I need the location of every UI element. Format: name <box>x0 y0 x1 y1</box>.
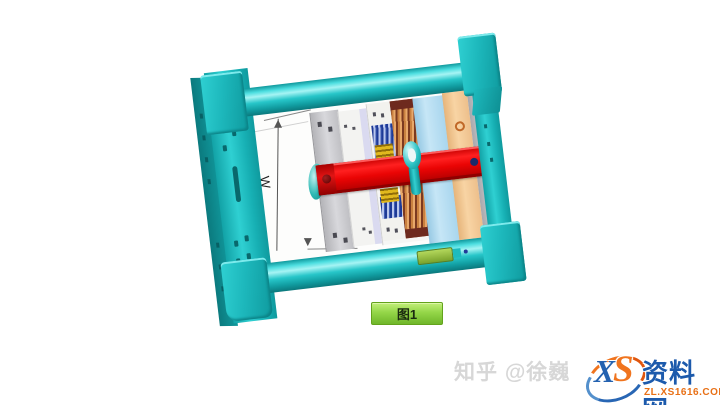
mold-frame-corner-bottom-right <box>480 221 527 285</box>
figure-page: W <box>0 0 720 405</box>
mold-assembly-figure: W <box>207 47 521 304</box>
locating-ring-mark <box>454 121 465 132</box>
site-logo: X S 资料网 ZL.XS1616.COM <box>585 349 720 403</box>
insert-gold-bottom <box>380 187 400 203</box>
mold-frame-corner-top-left <box>200 71 249 136</box>
spring-block-bottom <box>380 217 405 242</box>
zhihu-watermark: 知乎 @徐巍 <box>454 356 570 386</box>
bolt-holes <box>386 227 389 231</box>
spring-block-top <box>367 101 392 126</box>
mold-frame-corner-top-right <box>457 32 502 96</box>
bolt-holes <box>344 125 347 128</box>
bolt-holes <box>317 122 322 127</box>
lock-bar-bolt-right <box>470 157 479 166</box>
dimension-w-line <box>276 119 278 251</box>
frame-holes <box>484 124 487 128</box>
frame-slot <box>232 166 241 202</box>
mold-frame-corner-bottom-left <box>220 257 273 322</box>
eyebolt-stem <box>408 165 421 196</box>
logo-monogram-s: S <box>613 351 634 388</box>
figure-caption-badge: 图1 <box>371 302 443 325</box>
bolt-holes <box>373 112 376 116</box>
logo-site-url: ZL.XS1616.COM <box>644 387 720 398</box>
latch-end-cap <box>452 248 461 258</box>
frame-holes <box>200 114 204 119</box>
spring-retainer-bottom <box>405 227 430 239</box>
